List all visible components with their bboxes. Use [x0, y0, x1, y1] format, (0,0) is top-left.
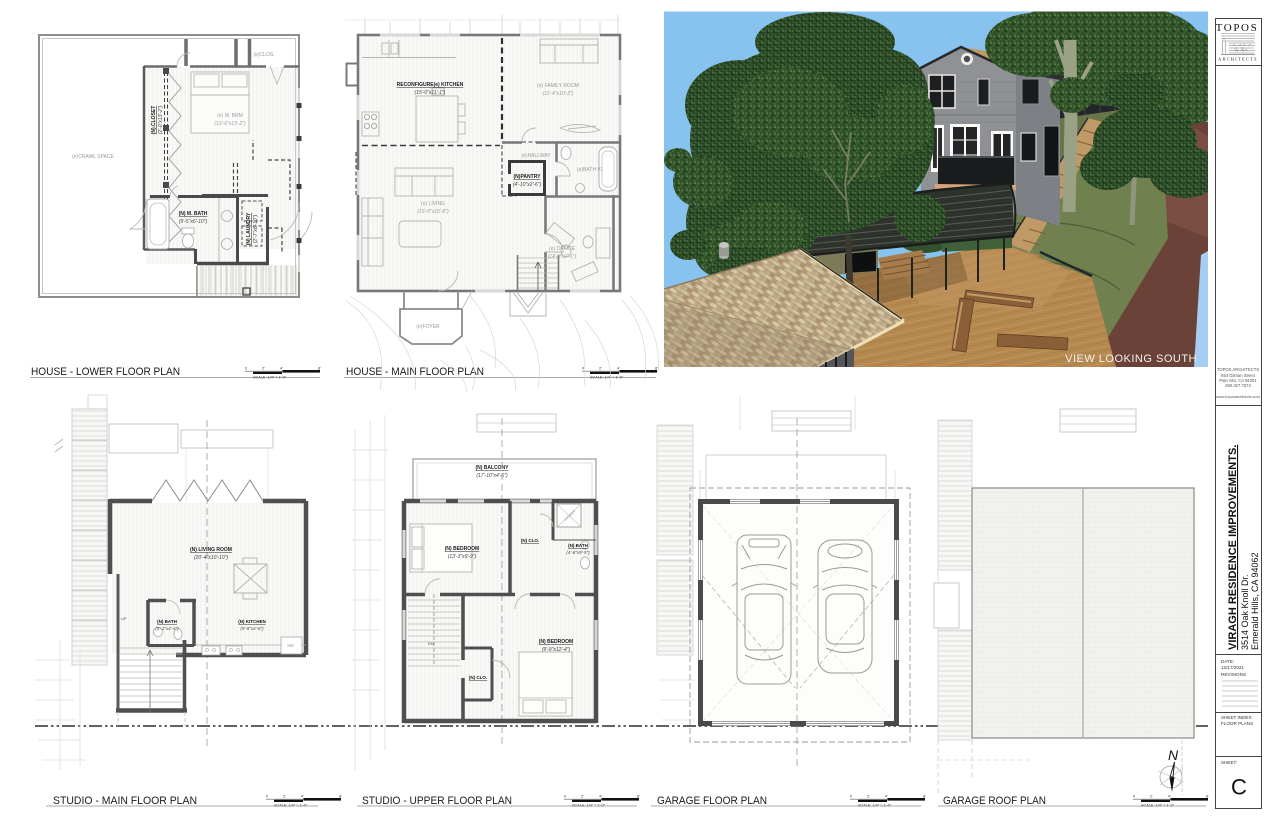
- svg-text:(e)CLOS.: (e)CLOS.: [253, 52, 274, 58]
- svg-text:RECONFIGURE(e) KITCHEN: RECONFIGURE(e) KITCHEN: [397, 82, 464, 88]
- svg-text:(2'-0"x13'-2"): (2'-0"x13'-2"): [158, 105, 164, 134]
- svg-text:REF: REF: [288, 644, 295, 648]
- svg-text:VIRAGH RESIDENCE IMPROVEMENTS.: VIRAGH RESIDENCE IMPROVEMENTS.: [1227, 445, 1239, 650]
- svg-text:(5'-1"x4'-4"): (5'-1"x4'-4"): [155, 626, 179, 631]
- svg-text:(9'-8"x4'-8"): (9'-8"x4'-8"): [240, 626, 264, 631]
- svg-text:(e)BATH #1: (e)BATH #1: [577, 167, 603, 173]
- svg-text:(4'-10"x2'-6"): (4'-10"x2'-6"): [513, 182, 542, 188]
- svg-text:2': 2': [867, 795, 870, 799]
- svg-text:8': 8': [637, 795, 640, 799]
- svg-text:(17'-10"x4'-6"): (17'-10"x4'-6"): [476, 473, 508, 479]
- svg-text:4': 4': [1168, 795, 1171, 799]
- svg-text:C: C: [1231, 775, 1247, 800]
- svg-text:(e) FAMILY ROOM: (e) FAMILY ROOM: [537, 83, 579, 89]
- svg-text:(13'-3"x9'-9"): (13'-3"x9'-9"): [448, 554, 477, 560]
- svg-text:(N) BALCONY: (N) BALCONY: [475, 465, 509, 471]
- svg-text:(9'-5"x6'-10"): (9'-5"x6'-10"): [179, 219, 208, 225]
- svg-text:(N) BATH: (N) BATH: [568, 543, 588, 548]
- svg-text:UP: UP: [121, 616, 127, 621]
- svg-text:SCALE: 1/4" = 1'-0": SCALE: 1/4" = 1'-0": [590, 376, 624, 380]
- svg-text:3514 Oak Knoll Dr.: 3514 Oak Knoll Dr.: [1240, 574, 1250, 650]
- svg-text:(e) M. BRM: (e) M. BRM: [217, 113, 243, 119]
- svg-text:(N) CLO.: (N) CLO.: [521, 538, 539, 543]
- svg-text:(e)HALLWAY: (e)HALLWAY: [521, 153, 551, 159]
- svg-text:(e)CRAWL SPACE: (e)CRAWL SPACE: [72, 154, 114, 160]
- svg-text:(N) LAUNDRY: (N) LAUNDRY: [246, 212, 252, 245]
- svg-text:(4'-6"x9'-9"): (4'-6"x9'-9"): [566, 550, 590, 555]
- svg-text:650.327.7573: 650.327.7573: [1225, 383, 1251, 388]
- svg-text:0: 0: [1133, 795, 1135, 799]
- svg-text:4': 4': [599, 795, 602, 799]
- svg-text:(N) BEDROOM: (N) BEDROOM: [445, 546, 479, 552]
- svg-text:(e) LIVING: (e) LIVING: [421, 201, 445, 207]
- svg-text:SCALE: 1/4" = 1'-0": SCALE: 1/4" = 1'-0": [858, 804, 892, 808]
- svg-text:SCALE: 1/4" = 1'-0": SCALE: 1/4" = 1'-0": [572, 804, 606, 808]
- svg-text:2': 2': [581, 795, 584, 799]
- svg-text:N: N: [1168, 747, 1179, 763]
- svg-text:(e) OFFICE: (e) OFFICE: [549, 246, 575, 252]
- svg-text:VIEW LOOKING SOUTH: VIEW LOOKING SOUTH: [1065, 353, 1197, 365]
- svg-text:2': 2': [599, 367, 602, 371]
- svg-text:(2'-7"x6'-10"): (2'-7"x6'-10"): [253, 214, 259, 243]
- svg-text:(15'-0"x15'-8"): (15'-0"x15'-8"): [417, 209, 449, 215]
- svg-text:(N) LIVING ROOM: (N) LIVING ROOM: [190, 547, 232, 553]
- svg-text:STUDIO - MAIN FLOOR PLAN: STUDIO - MAIN FLOOR PLAN: [53, 795, 197, 807]
- svg-text:Emerald Hills, CA 94062: Emerald Hills, CA 94062: [1250, 552, 1260, 650]
- svg-text:4': 4': [301, 795, 304, 799]
- svg-text:2': 2': [283, 795, 286, 799]
- svg-text:SHEET:: SHEET:: [1221, 760, 1237, 765]
- svg-text:DATE:: DATE:: [1221, 659, 1234, 664]
- svg-text:4': 4': [617, 367, 620, 371]
- svg-text:4': 4': [280, 367, 283, 371]
- svg-text:GARAGE FLOOR PLAN: GARAGE FLOOR PLAN: [657, 795, 767, 807]
- svg-text:TOPOS: TOPOS: [1216, 22, 1259, 34]
- svg-text:8': 8': [1206, 795, 1209, 799]
- svg-text:(e)FOYER: (e)FOYER: [416, 324, 440, 330]
- svg-text:(N) BATH: (N) BATH: [157, 619, 177, 624]
- svg-text:(11'-4"x10'-3"): (11'-4"x10'-3"): [543, 91, 574, 97]
- svg-text:4': 4': [885, 795, 888, 799]
- svg-text:SCALE: 1/4" = 1'-0": SCALE: 1/4" = 1'-0": [253, 376, 287, 380]
- svg-text:(9'-9"x12'-4"): (9'-9"x12'-4"): [542, 647, 571, 653]
- svg-text:(N) KITCHEN: (N) KITCHEN: [238, 619, 266, 624]
- svg-text:TOPOS ARCHITECTS: TOPOS ARCHITECTS: [1217, 367, 1259, 372]
- svg-text:(20'-4"x10'-10"): (20'-4"x10'-10"): [194, 555, 228, 561]
- svg-text:(N) BEDROOM: (N) BEDROOM: [539, 639, 573, 645]
- svg-text:0: 0: [245, 367, 247, 371]
- svg-text:(N) M. BATH: (N) M. BATH: [179, 211, 208, 217]
- svg-text:(N)PANTRY: (N)PANTRY: [514, 174, 542, 180]
- svg-text:2': 2': [1150, 795, 1153, 799]
- svg-text:www.toposarchitects.com: www.toposarchitects.com: [1216, 394, 1260, 399]
- svg-text:(15'-0"x11'-1"): (15'-0"x11'-1"): [415, 90, 446, 96]
- svg-text:STUDIO - UPPER FLOOR PLAN: STUDIO - UPPER FLOOR PLAN: [362, 795, 512, 807]
- svg-text:0: 0: [564, 795, 566, 799]
- svg-text:0: 0: [266, 795, 268, 799]
- svg-text:SHEET INDEX:: SHEET INDEX:: [1221, 715, 1253, 720]
- svg-text:(13'-6"x13'-2"): (13'-6"x13'-2"): [214, 121, 246, 127]
- svg-text:HOUSE - LOWER FLOOR PLAN: HOUSE - LOWER FLOOR PLAN: [31, 366, 180, 378]
- svg-text:8': 8': [655, 367, 658, 371]
- svg-text:SCALE: 1/4" = 1'-0": SCALE: 1/4" = 1'-0": [1141, 804, 1175, 808]
- svg-text:8': 8': [923, 795, 926, 799]
- svg-text:8': 8': [318, 367, 321, 371]
- svg-text:12/17/2021: 12/17/2021: [1221, 665, 1244, 670]
- svg-text:(N) CLO.: (N) CLO.: [469, 675, 487, 680]
- svg-text:FLOOR PLANS: FLOOR PLANS: [1221, 721, 1253, 726]
- svg-text:GARAGE ROOF PLAN: GARAGE ROOF PLAN: [943, 795, 1046, 807]
- svg-text:SCALE: 1/4" = 1'-0": SCALE: 1/4" = 1'-0": [274, 804, 308, 808]
- svg-text:8': 8': [339, 795, 342, 799]
- svg-text:(14'-0"x7'-1"): (14'-0"x7'-1"): [548, 254, 577, 260]
- svg-text:ARCHITECTS: ARCHITECTS: [1218, 57, 1258, 62]
- svg-text:DN: DN: [428, 641, 434, 646]
- svg-text:(N).CLOSET: (N).CLOSET: [151, 106, 157, 135]
- svg-text:0: 0: [850, 795, 852, 799]
- svg-text:2': 2': [262, 367, 265, 371]
- svg-text:REVISIONS: REVISIONS: [1221, 672, 1246, 677]
- svg-text:0: 0: [582, 367, 584, 371]
